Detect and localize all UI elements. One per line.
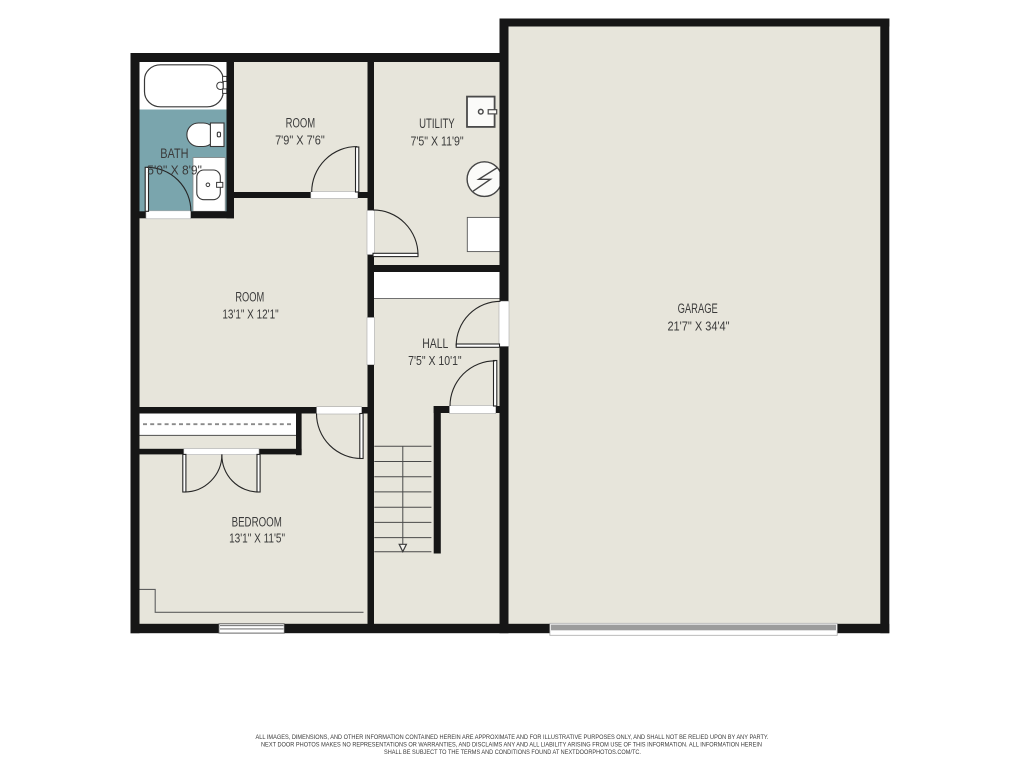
svg-text:GARAGE: GARAGE <box>678 301 718 316</box>
svg-text:5'0" X 8'9": 5'0" X 8'9" <box>147 163 202 178</box>
svg-text:13'1" X 11'5": 13'1" X 11'5" <box>229 531 285 546</box>
svg-text:BATH: BATH <box>160 146 188 161</box>
svg-text:ALL IMAGES, DIMENSIONS, AND OT: ALL IMAGES, DIMENSIONS, AND OTHER INFORM… <box>256 734 769 741</box>
svg-text:13'1" X 12'1": 13'1" X 12'1" <box>222 306 279 321</box>
svg-text:7'9" X 7'6": 7'9" X 7'6" <box>275 132 325 147</box>
svg-text:BEDROOM: BEDROOM <box>232 514 282 529</box>
svg-text:NEXT DOOR PHOTOS MAKES NO REPR: NEXT DOOR PHOTOS MAKES NO REPRESENTATION… <box>261 742 762 749</box>
svg-text:ROOM: ROOM <box>286 116 316 131</box>
svg-text:UTILITY: UTILITY <box>419 116 455 131</box>
svg-text:21'7" X 34'4": 21'7" X 34'4" <box>667 319 729 334</box>
svg-text:ROOM: ROOM <box>235 289 264 304</box>
svg-text:7'5" X 10'1": 7'5" X 10'1" <box>408 353 462 368</box>
svg-text:7'5" X 11'9": 7'5" X 11'9" <box>411 134 464 149</box>
svg-text:SHALL BE SUBJECT TO THE TERMS: SHALL BE SUBJECT TO THE TERMS AND CONDIT… <box>384 749 641 756</box>
svg-text:HALL: HALL <box>422 336 448 351</box>
